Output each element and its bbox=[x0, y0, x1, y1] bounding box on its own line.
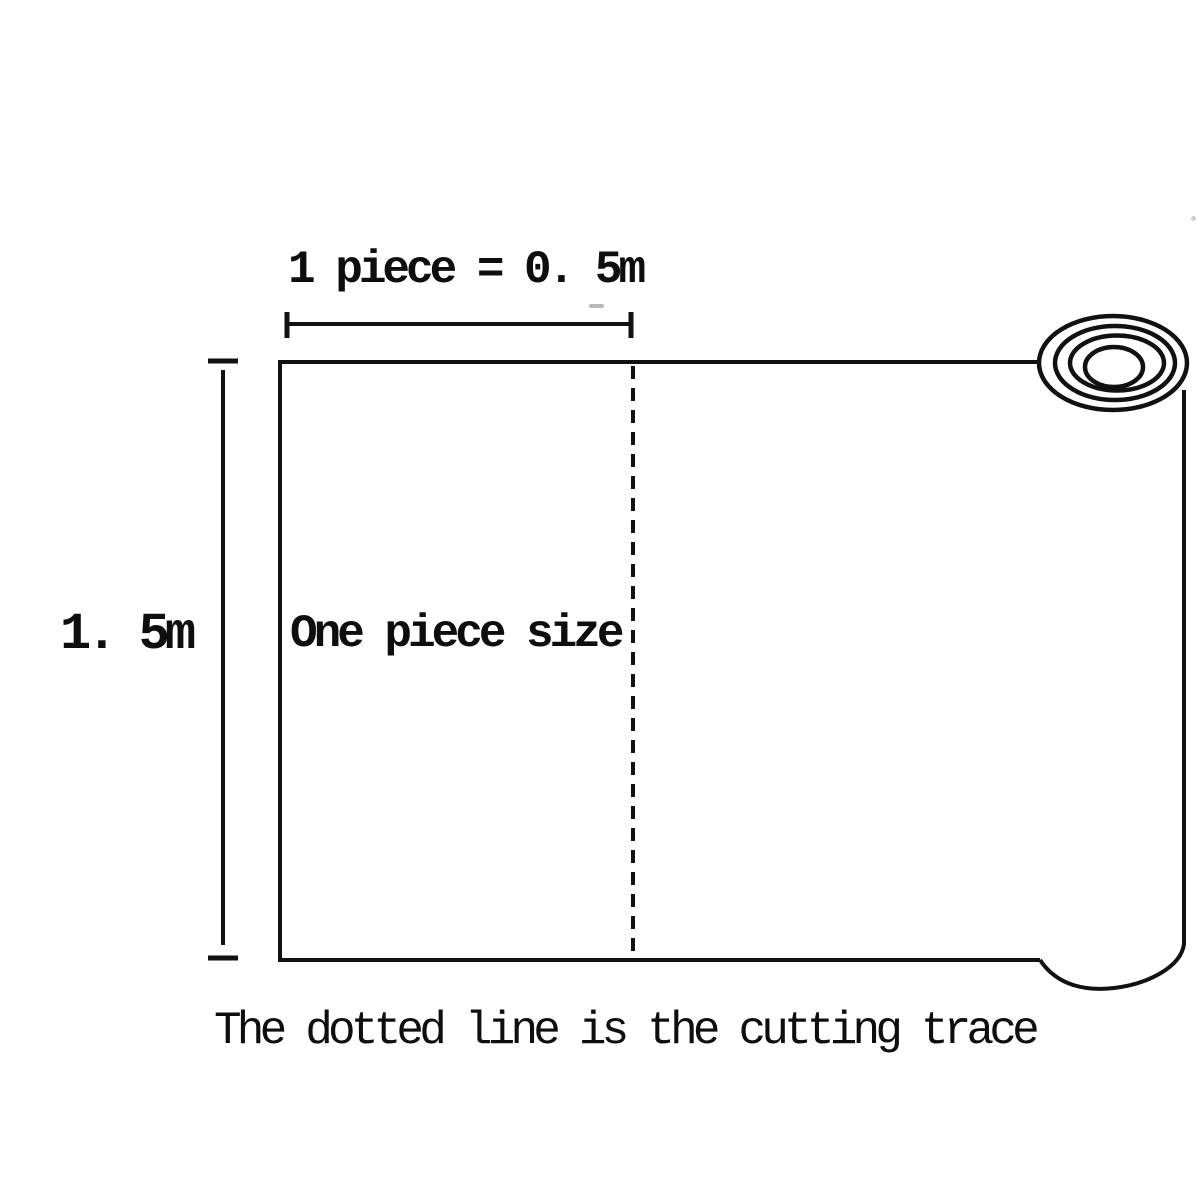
top-dimension-label: 1 piece = 0. 5m bbox=[288, 243, 642, 298]
sheet-outline bbox=[278, 360, 1184, 989]
one-piece-size-label: One piece size bbox=[290, 607, 620, 662]
diagram-canvas: 1 piece = 0. 5m 1. 5m One piece size The… bbox=[0, 0, 1200, 1200]
vertical-dimension-line bbox=[208, 361, 238, 958]
roll-ring-inner bbox=[1085, 347, 1143, 387]
scan-artifact-dot bbox=[1191, 216, 1196, 221]
cutting-trace-caption: The dotted line is the cutting trace bbox=[214, 1004, 1035, 1059]
scan-artifact-dash bbox=[589, 304, 604, 308]
left-dimension-label: 1. 5m bbox=[60, 604, 191, 666]
horizontal-dimension-line bbox=[287, 312, 631, 338]
sheet-right-edge-curl bbox=[1040, 390, 1184, 989]
rolled-material-icon bbox=[1039, 316, 1187, 410]
